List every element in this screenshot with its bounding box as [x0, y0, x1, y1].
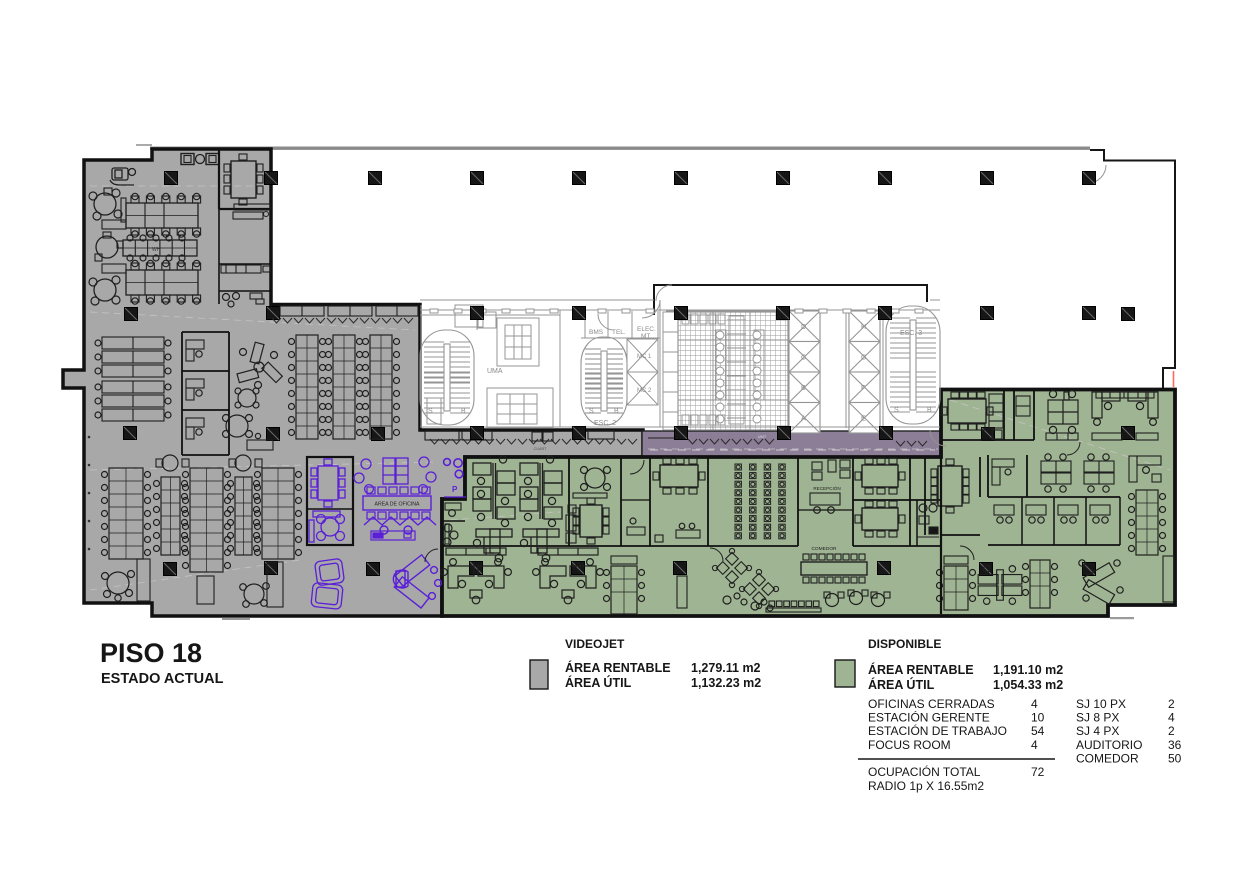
svg-text:4: 4 [1168, 711, 1175, 725]
svg-text:ÁREA ÚTIL: ÁREA ÚTIL [868, 677, 935, 692]
svg-text:E: E [861, 416, 866, 423]
svg-text:1,132.23 m2: 1,132.23 m2 [691, 676, 761, 690]
svg-text:B: B [461, 408, 466, 415]
svg-text:S: S [589, 408, 594, 415]
svg-text:FOCUS ROOM: FOCUS ROOM [868, 738, 951, 752]
svg-text:ESTACIÓN DE TRABAJO: ESTACIÓN DE TRABAJO [868, 723, 1007, 738]
svg-text:COMEDOR: COMEDOR [1076, 751, 1139, 765]
svg-text:OFICINAS CERRADAS: OFICINAS CERRADAS [868, 697, 995, 711]
svg-text:C: C [801, 355, 806, 362]
svg-text:CUART: CUART [533, 447, 547, 451]
svg-text:4: 4 [1031, 738, 1038, 752]
svg-text:SJ 4 PX: SJ 4 PX [1076, 724, 1119, 738]
svg-text:UMA: UMA [487, 368, 503, 375]
svg-text:ESTACIÓN GERENTE: ESTACIÓN GERENTE [868, 710, 990, 725]
svg-text:1,191.10 m2: 1,191.10 m2 [993, 663, 1063, 677]
svg-text:ÁREA RENTABLE: ÁREA RENTABLE [868, 662, 974, 677]
svg-text:AUDITORIO: AUDITORIO [1076, 738, 1142, 752]
svg-text:ESC. 3: ESC. 3 [900, 330, 922, 337]
svg-text:MT: MT [641, 333, 650, 340]
svg-text:H: H [861, 324, 866, 331]
svg-text:WH: WH [152, 247, 161, 253]
svg-text:VIDEOJET: VIDEOJET [565, 637, 625, 651]
svg-text:S: S [428, 408, 433, 415]
svg-text:AREA DE OFICINA: AREA DE OFICINA [375, 502, 421, 508]
svg-text:F: F [861, 385, 865, 392]
svg-text:D: D [801, 324, 806, 331]
svg-text:DISPONIBLE: DISPONIBLE [868, 637, 941, 651]
svg-text:ÁREA RENTABLE: ÁREA RENTABLE [565, 660, 671, 675]
svg-text:1,054.33 m2: 1,054.33 m2 [993, 678, 1063, 692]
svg-text:1,279.11 m2: 1,279.11 m2 [691, 661, 761, 675]
svg-text:P: P [452, 485, 458, 494]
svg-text:PISO 18: PISO 18 [100, 638, 202, 668]
svg-text:OCUPACIÓN TOTAL: OCUPACIÓN TOTAL [868, 764, 981, 779]
svg-text:ESC. 2: ESC. 2 [594, 420, 616, 427]
svg-text:54: 54 [1031, 724, 1045, 738]
svg-text:BMS: BMS [589, 329, 604, 336]
svg-text:2: 2 [1168, 724, 1175, 738]
svg-text:A: A [801, 416, 806, 423]
svg-text:ÁREA ÚTIL: ÁREA ÚTIL [565, 675, 632, 690]
svg-text:S: S [894, 407, 899, 414]
svg-text:B: B [614, 408, 619, 415]
svg-text:UMT: UMT [758, 434, 767, 439]
svg-text:G: G [861, 355, 866, 362]
svg-text:50: 50 [1168, 751, 1182, 765]
svg-text:B: B [927, 407, 932, 414]
svg-text:RADIO 1p X 16.55m2: RADIO 1p X 16.55m2 [868, 779, 984, 793]
svg-text:B: B [801, 385, 806, 392]
svg-text:ESTADO ACTUAL: ESTADO ACTUAL [101, 671, 224, 687]
svg-text:4: 4 [1031, 697, 1038, 711]
svg-text:RECEPCIÓN: RECEPCIÓN [813, 485, 840, 491]
svg-text:72: 72 [1031, 765, 1045, 779]
svg-text:SJ 10 PX: SJ 10 PX [1076, 697, 1126, 711]
svg-text:36: 36 [1168, 738, 1182, 752]
svg-text:TEL.: TEL. [612, 329, 626, 336]
svg-text:ELEC.: ELEC. [637, 326, 656, 333]
svg-text:2: 2 [1168, 697, 1175, 711]
svg-text:MC 1: MC 1 [637, 354, 652, 360]
svg-text:MC 2: MC 2 [637, 388, 652, 394]
svg-text:10: 10 [1031, 711, 1045, 725]
svg-text:COMEDOR: COMEDOR [811, 546, 837, 552]
svg-text:SJ 8 PX: SJ 8 PX [1076, 711, 1119, 725]
